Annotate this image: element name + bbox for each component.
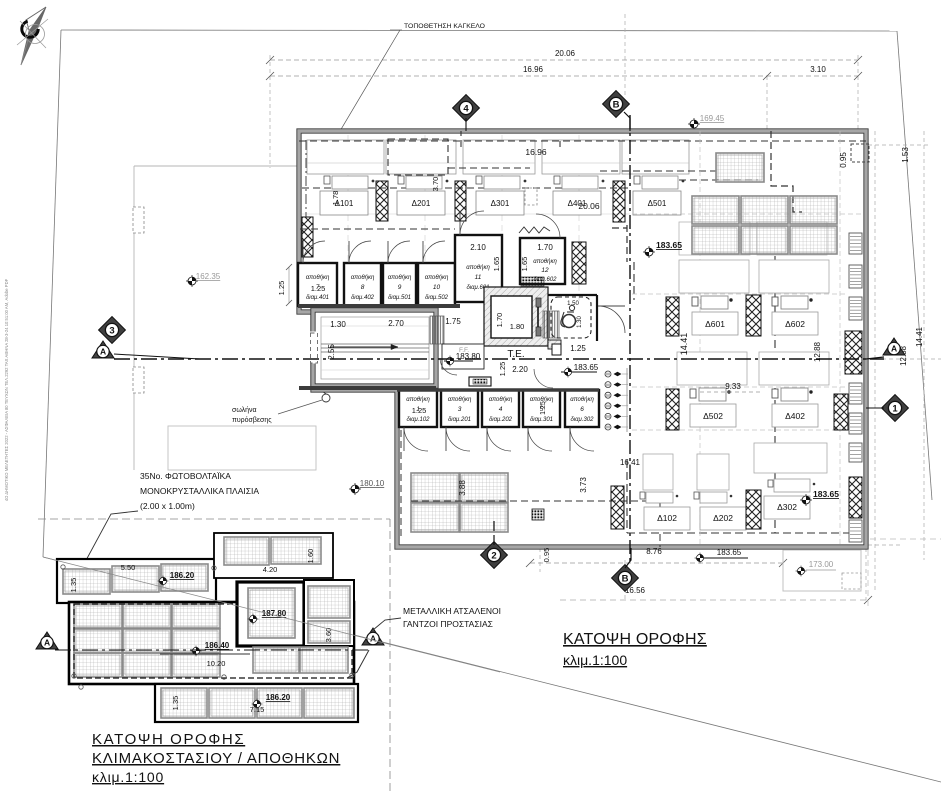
- svg-text:Δ501: Δ501: [648, 199, 667, 208]
- svg-text:2.10: 2.10: [470, 243, 486, 252]
- svg-text:M: M: [606, 382, 610, 387]
- svg-text:1.30: 1.30: [330, 320, 346, 329]
- svg-text:αποθήκη: αποθήκη: [406, 396, 430, 403]
- svg-text:9: 9: [398, 284, 402, 291]
- svg-text:6: 6: [580, 406, 584, 413]
- svg-text:M: M: [606, 425, 610, 430]
- svg-text:1.25: 1.25: [311, 284, 326, 293]
- svg-text:169.45: 169.45: [700, 114, 725, 123]
- svg-text:8.76: 8.76: [646, 547, 662, 556]
- svg-text:12: 12: [541, 267, 549, 274]
- svg-text:M: M: [606, 372, 610, 377]
- svg-text:Δ302: Δ302: [777, 502, 797, 512]
- svg-text:3: 3: [109, 325, 114, 336]
- svg-text:αποθήκη: αποθήκη: [306, 274, 330, 281]
- svg-text:5.50: 5.50: [121, 563, 136, 572]
- svg-text:αποθήκη: αποθήκη: [351, 274, 375, 281]
- svg-text:1.25: 1.25: [540, 401, 547, 415]
- svg-text:3.10: 3.10: [810, 65, 826, 74]
- svg-text:διαμ.502: διαμ.502: [425, 295, 449, 301]
- svg-text:2.70: 2.70: [388, 319, 404, 328]
- svg-text:διαμ.202: διαμ.202: [489, 417, 513, 423]
- svg-text:1.70: 1.70: [537, 243, 553, 252]
- svg-text:M: M: [606, 404, 610, 409]
- svg-text:8: 8: [361, 284, 365, 291]
- svg-text:11: 11: [475, 274, 482, 281]
- svg-text:αποθήκη: αποθήκη: [466, 264, 490, 271]
- svg-text:Δ102: Δ102: [657, 513, 677, 523]
- svg-text:κλιμ.1:100: κλιμ.1:100: [563, 652, 627, 668]
- svg-text:διαμ.501: διαμ.501: [388, 295, 411, 301]
- svg-text:A: A: [891, 344, 897, 354]
- svg-text:186.20: 186.20: [170, 571, 195, 580]
- svg-text:ΜΕΤΑΛΛΙΚΗ ΑΤΣΑΛΕΝΟΙ: ΜΕΤΑΛΛΙΚΗ ΑΤΣΑΛΕΝΟΙ: [403, 606, 501, 616]
- svg-text:162.35: 162.35: [196, 272, 221, 281]
- svg-text:αποθήκη: αποθήκη: [570, 396, 594, 403]
- svg-text:Δ301: Δ301: [491, 199, 510, 208]
- svg-text:διαμ.402: διαμ.402: [351, 295, 375, 301]
- svg-text:Δ202: Δ202: [713, 513, 733, 523]
- svg-text:Δ201: Δ201: [412, 199, 431, 208]
- svg-text:186.20: 186.20: [266, 693, 291, 702]
- svg-text:1.25: 1.25: [277, 281, 286, 296]
- svg-text:14.41: 14.41: [679, 333, 689, 356]
- svg-text:σωλήνα: σωλήνα: [232, 407, 257, 414]
- svg-text:4: 4: [499, 406, 503, 413]
- svg-text:1.25: 1.25: [498, 362, 507, 377]
- svg-text:διαμ.301: διαμ.301: [530, 417, 553, 423]
- svg-text:Δ502: Δ502: [703, 411, 723, 421]
- svg-text:2.55: 2.55: [327, 344, 336, 360]
- svg-text:3.88: 3.88: [458, 480, 467, 496]
- svg-text:ΤΟΠΟΘΕΤΗΣΗ ΚΑΓΚΕΛΟ: ΤΟΠΟΘΕΤΗΣΗ ΚΑΓΚΕΛΟ: [404, 23, 485, 30]
- svg-text:διαμ.302: διαμ.302: [570, 417, 594, 423]
- svg-text:186.40: 186.40: [205, 641, 230, 650]
- svg-text:183.65: 183.65: [813, 489, 839, 499]
- svg-text:Δ601: Δ601: [705, 319, 725, 329]
- svg-text:B: B: [622, 573, 629, 584]
- svg-text:αποθήκη: αποθήκη: [533, 258, 557, 265]
- svg-text:183.65: 183.65: [717, 548, 742, 557]
- svg-text:1.70: 1.70: [495, 313, 504, 328]
- svg-text:διαμ.201: διαμ.201: [448, 417, 471, 423]
- svg-text:1.60: 1.60: [306, 549, 315, 564]
- svg-text:1.65: 1.65: [492, 257, 501, 272]
- svg-text:183.65: 183.65: [656, 240, 682, 250]
- svg-text:1.80: 1.80: [510, 322, 525, 331]
- svg-text:ΓΑΝΤΖΟΙ ΠΡΟΣΤΑΣΙΑΣ: ΓΑΝΤΖΟΙ ΠΡΟΣΤΑΣΙΑΣ: [403, 619, 493, 629]
- svg-text:10: 10: [433, 284, 441, 291]
- svg-text:4: 4: [463, 103, 469, 114]
- svg-text:αποθήκη: αποθήκη: [425, 274, 449, 281]
- svg-text:187.80: 187.80: [262, 609, 287, 618]
- svg-text:ΚΑΤΟΨΗ ΟΡΟΦΗΣ: ΚΑΤΟΨΗ ΟΡΟΦΗΣ: [92, 731, 245, 748]
- svg-text:2.20: 2.20: [512, 365, 528, 374]
- svg-text:1.65: 1.65: [520, 257, 529, 272]
- svg-text:Δ602: Δ602: [785, 319, 805, 329]
- svg-text:A: A: [370, 634, 376, 644]
- svg-text:20.06: 20.06: [555, 49, 576, 58]
- svg-text:M: M: [606, 414, 610, 419]
- svg-text:0.95: 0.95: [839, 152, 848, 168]
- svg-text:M: M: [606, 393, 610, 398]
- svg-text:1.78: 1.78: [331, 191, 340, 206]
- svg-text:4Ο ΔΗΜΟΤΙΚΟ ΜΕΛΕΤΗΤΕΣ 2022 - Α: 4Ο ΔΗΜΟΤΙΚΟ ΜΕΛΕΤΗΤΕΣ 2022 - ΑΣΦΑΛΕΙΑ 80…: [4, 278, 9, 501]
- svg-text:ΚΑΤΟΨΗ ΟΡΟΦΗΣ: ΚΑΤΟΨΗ ΟΡΟΦΗΣ: [563, 631, 707, 648]
- svg-text:αποθήκη: αποθήκη: [388, 274, 412, 281]
- svg-text:B: B: [613, 99, 620, 110]
- svg-text:1.30: 1.30: [577, 316, 583, 328]
- svg-text:0.95: 0.95: [542, 548, 551, 563]
- svg-text:3.73: 3.73: [579, 477, 588, 493]
- svg-text:183.65: 183.65: [574, 363, 599, 372]
- svg-text:14.41: 14.41: [915, 326, 924, 347]
- svg-text:16.96: 16.96: [525, 147, 547, 157]
- svg-text:3.70: 3.70: [431, 177, 440, 192]
- svg-text:αποθήκη: αποθήκη: [489, 396, 513, 403]
- svg-text:A: A: [100, 347, 106, 357]
- svg-text:αποθήκη: αποθήκη: [448, 396, 472, 403]
- svg-text:ΜΟΝΟΚΡΥΣΤΑΛΛΙΚΑ ΠΛΑΙΣΙΑ: ΜΟΝΟΚΡΥΣΤΑΛΛΙΚΑ ΠΛΑΙΣΙΑ: [140, 486, 259, 496]
- svg-text:διαμ.401: διαμ.401: [306, 295, 329, 301]
- svg-text:173.00: 173.00: [809, 560, 834, 569]
- svg-text:35Νο. ΦΩΤΟΒΟΛΤΑΪΚΑ: 35Νο. ΦΩΤΟΒΟΛΤΑΪΚΑ: [140, 471, 231, 481]
- svg-text:16.96: 16.96: [523, 65, 544, 74]
- svg-text:1.50: 1.50: [567, 301, 579, 307]
- svg-text:3: 3: [458, 406, 462, 413]
- svg-text:ΚΛΙΜΑΚΟΣΤΑΣΙΟΥ / ΑΠΟΘΗΚΩΝ: ΚΛΙΜΑΚΟΣΤΑΣΙΟΥ / ΑΠΟΘΗΚΩΝ: [92, 750, 340, 767]
- svg-text:1.25: 1.25: [412, 406, 427, 415]
- svg-text:1.75: 1.75: [445, 317, 461, 326]
- svg-text:20.06: 20.06: [578, 201, 600, 211]
- svg-text:1.35: 1.35: [171, 696, 180, 711]
- svg-text:180.10: 180.10: [360, 479, 385, 488]
- svg-text:A: A: [44, 638, 50, 648]
- svg-text:10.20: 10.20: [207, 659, 226, 668]
- svg-text:1.53: 1.53: [901, 147, 910, 163]
- svg-text:κλιμ.1:100: κλιμ.1:100: [92, 769, 164, 785]
- svg-text:7.15: 7.15: [250, 705, 265, 714]
- svg-text:9.33: 9.33: [725, 382, 741, 391]
- svg-text:1.25: 1.25: [570, 344, 586, 353]
- svg-text:2: 2: [491, 550, 496, 561]
- svg-text:πυρόσβεσης: πυρόσβεσης: [232, 416, 272, 424]
- svg-text:Δ402: Δ402: [785, 411, 805, 421]
- svg-text:διαμ.102: διαμ.102: [406, 417, 430, 423]
- svg-text:(2.00 x 1.00m): (2.00 x 1.00m): [140, 501, 195, 511]
- svg-text:4.20: 4.20: [263, 565, 278, 574]
- svg-text:1: 1: [892, 403, 898, 414]
- svg-text:1.35: 1.35: [69, 578, 78, 593]
